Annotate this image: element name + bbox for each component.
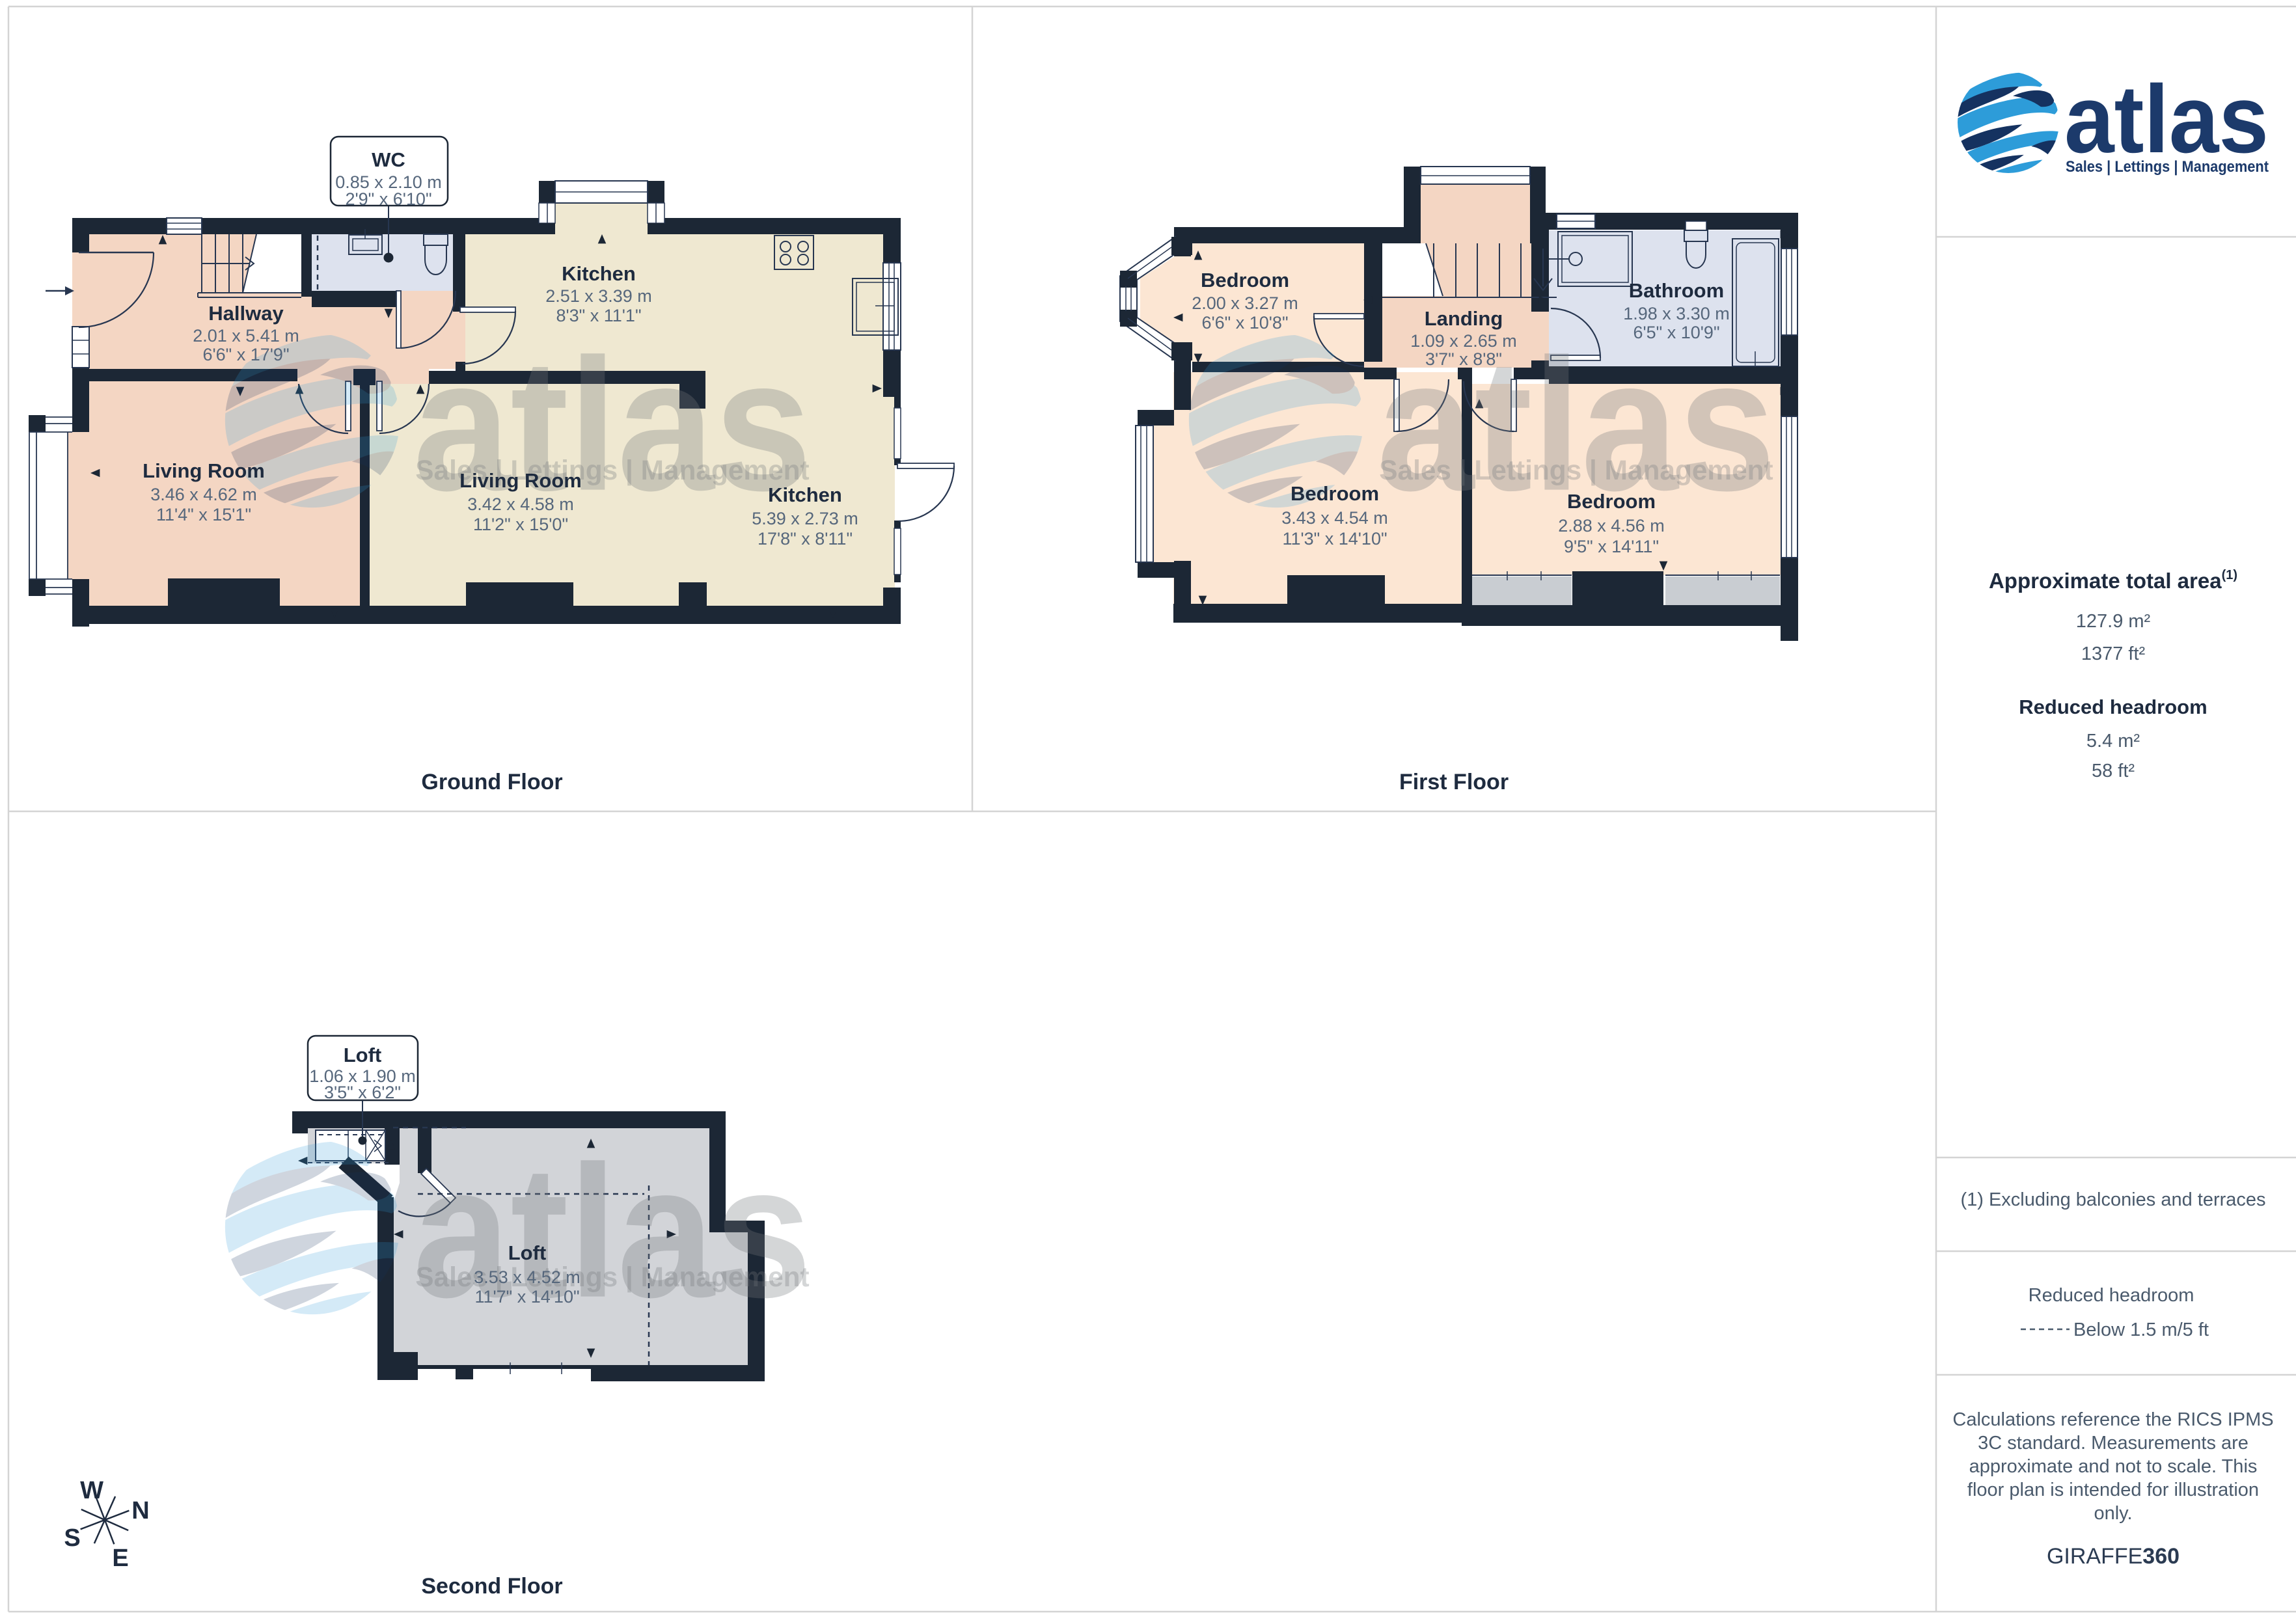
svg-text:5.4 m²: 5.4 m² <box>2086 731 2140 751</box>
svg-text:11'4" x 15'1": 11'4" x 15'1" <box>156 505 251 524</box>
svg-text:Below 1.5 m/5 ft: Below 1.5 m/5 ft <box>2073 1319 2209 1340</box>
svg-text:11'2" x 15'0": 11'2" x 15'0" <box>473 515 568 534</box>
svg-text:2.88 x 4.56 m: 2.88 x 4.56 m <box>1558 516 1665 535</box>
svg-text:8'3" x 11'1": 8'3" x 11'1" <box>556 306 641 325</box>
svg-text:2.00 x 3.27 m: 2.00 x 3.27 m <box>1192 293 1298 313</box>
svg-text:17'8" x 8'11": 17'8" x 8'11" <box>758 529 853 548</box>
svg-text:Living Room: Living Room <box>459 469 582 492</box>
svg-text:5.39 x 2.73 m: 5.39 x 2.73 m <box>752 509 858 528</box>
svg-text:9'5" x 14'11": 9'5" x 14'11" <box>1564 537 1659 556</box>
svg-text:Reduced headroom: Reduced headroom <box>2019 696 2207 718</box>
svg-text:11'3" x 14'10": 11'3" x 14'10" <box>1282 529 1387 548</box>
svg-text:127.9 m²: 127.9 m² <box>2076 611 2151 632</box>
svg-text:GIRAFFE360: GIRAFFE360 <box>2047 1544 2180 1569</box>
svg-text:E: E <box>112 1545 128 1572</box>
svg-text:3.42 x 4.58 m: 3.42 x 4.58 m <box>467 494 574 514</box>
svg-text:Bathroom: Bathroom <box>1629 279 1724 302</box>
svg-text:Loft: Loft <box>344 1044 382 1066</box>
svg-text:Reduced headroom: Reduced headroom <box>2029 1285 2194 1306</box>
svg-text:Loft: Loft <box>508 1241 547 1264</box>
svg-text:WC: WC <box>372 148 405 171</box>
svg-text:11'7" x 14'10": 11'7" x 14'10" <box>474 1287 579 1306</box>
svg-text:approximate and not to scale.: approximate and not to scale. This <box>1969 1456 2258 1477</box>
svg-text:Bedroom: Bedroom <box>1291 482 1379 505</box>
svg-text:Ground Floor: Ground Floor <box>421 770 562 794</box>
svg-text:S: S <box>64 1524 80 1552</box>
svg-text:3.53 x 4.52 m: 3.53 x 4.52 m <box>474 1267 581 1287</box>
svg-text:3'5" x 6'2": 3'5" x 6'2" <box>324 1083 401 1102</box>
svg-text:Landing: Landing <box>1425 307 1503 330</box>
svg-text:floor plan is intended for ill: floor plan is intended for illustration <box>1967 1480 2259 1500</box>
svg-text:6'6" x 17'9": 6'6" x 17'9" <box>202 345 289 364</box>
svg-text:Living Room: Living Room <box>143 459 265 482</box>
svg-text:1.09 x 2.65 m: 1.09 x 2.65 m <box>1410 331 1517 351</box>
svg-text:First Floor: First Floor <box>1399 770 1509 794</box>
svg-text:W: W <box>80 1477 103 1504</box>
svg-text:3C standard. Measurements are: 3C standard. Measurements are <box>1978 1433 2248 1454</box>
svg-text:N: N <box>131 1497 149 1524</box>
svg-text:Approximate total area(1): Approximate total area(1) <box>1989 568 2237 593</box>
svg-text:6'6" x 10'8": 6'6" x 10'8" <box>1201 313 1288 332</box>
svg-text:Bedroom: Bedroom <box>1567 490 1656 513</box>
svg-text:only.: only. <box>2094 1503 2132 1524</box>
svg-text:(1) Excluding balconies and te: (1) Excluding balconies and terraces <box>1960 1189 2265 1210</box>
svg-text:Bedroom: Bedroom <box>1201 269 1289 291</box>
svg-text:3.43 x 4.54 m: 3.43 x 4.54 m <box>1281 508 1388 528</box>
svg-text:Calculations reference the RIC: Calculations reference the RICS IPMS <box>1952 1409 2273 1430</box>
svg-text:58 ft²: 58 ft² <box>2092 761 2135 781</box>
svg-text:Kitchen: Kitchen <box>562 262 636 285</box>
svg-text:2'9" x 6'10": 2'9" x 6'10" <box>345 189 431 209</box>
svg-text:1.98 x 3.30 m: 1.98 x 3.30 m <box>1623 304 1730 323</box>
svg-text:Kitchen: Kitchen <box>768 483 842 506</box>
svg-text:Hallway: Hallway <box>208 302 284 325</box>
svg-text:3'7" x 8'8": 3'7" x 8'8" <box>1425 349 1502 369</box>
svg-text:6'5" x 10'9": 6'5" x 10'9" <box>1633 323 1719 342</box>
svg-text:3.46 x 4.62 m: 3.46 x 4.62 m <box>150 485 257 504</box>
svg-text:2.51 x 3.39 m: 2.51 x 3.39 m <box>545 286 652 306</box>
svg-text:2.01 x 5.41 m: 2.01 x 5.41 m <box>193 326 299 345</box>
svg-text:Second Floor: Second Floor <box>421 1574 562 1599</box>
svg-text:1377 ft²: 1377 ft² <box>2081 643 2146 664</box>
